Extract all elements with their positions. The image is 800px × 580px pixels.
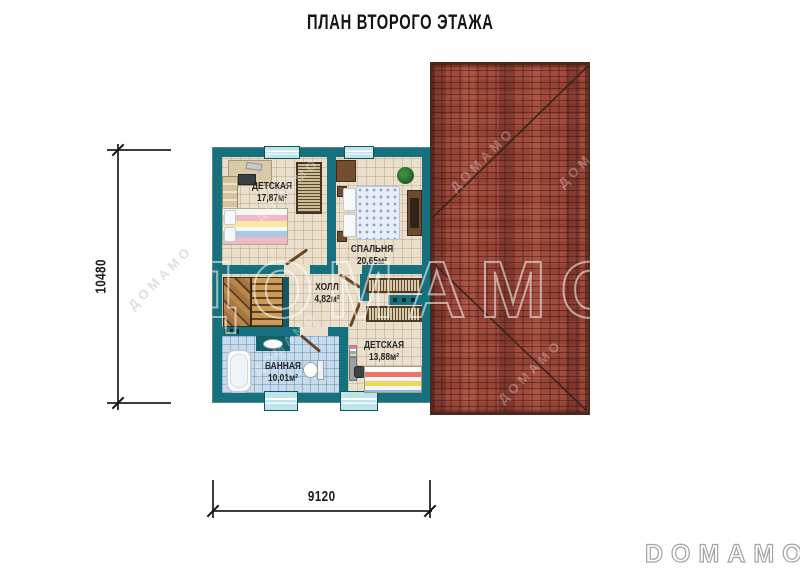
page-title: ПЛАН ВТОРОГО ЭТАЖА: [0, 11, 800, 35]
window-kidsroom1: [264, 146, 300, 159]
toilet-tank: [317, 360, 324, 380]
dimension-line-vertical: [117, 144, 119, 410]
bedroom-cabinet: [336, 160, 356, 182]
window-bedroom: [344, 146, 374, 159]
kids-bed-2: [364, 366, 422, 393]
pillow: [343, 188, 356, 211]
room-label-kidsroom2: ДЕТСКАЯ13,88м²: [354, 340, 414, 364]
roof-plan: [430, 62, 590, 415]
roof-ridge-lines: [432, 64, 588, 413]
pillow: [224, 210, 236, 225]
floor-plan-page: ПЛАН ВТОРОГО ЭТАЖА: [0, 0, 800, 580]
window-bathroom: [264, 391, 298, 411]
watermark-large: ДОМАМО: [180, 244, 637, 336]
pillow: [224, 227, 236, 242]
dimension-line-horizontal: [212, 510, 432, 512]
wall-between-bathroom-kidsroom2: [339, 336, 348, 393]
window-kidsroom2: [340, 391, 378, 411]
plant: [397, 167, 414, 184]
pillow: [343, 214, 356, 237]
double-bed: [356, 186, 400, 240]
brand-logo: DOMAMO: [645, 540, 800, 569]
dimension-height-label: 10480: [93, 247, 110, 307]
dimension-width-label: 9120: [292, 488, 352, 505]
tv-unit: [410, 198, 419, 228]
bathtub-basin: [230, 354, 248, 388]
